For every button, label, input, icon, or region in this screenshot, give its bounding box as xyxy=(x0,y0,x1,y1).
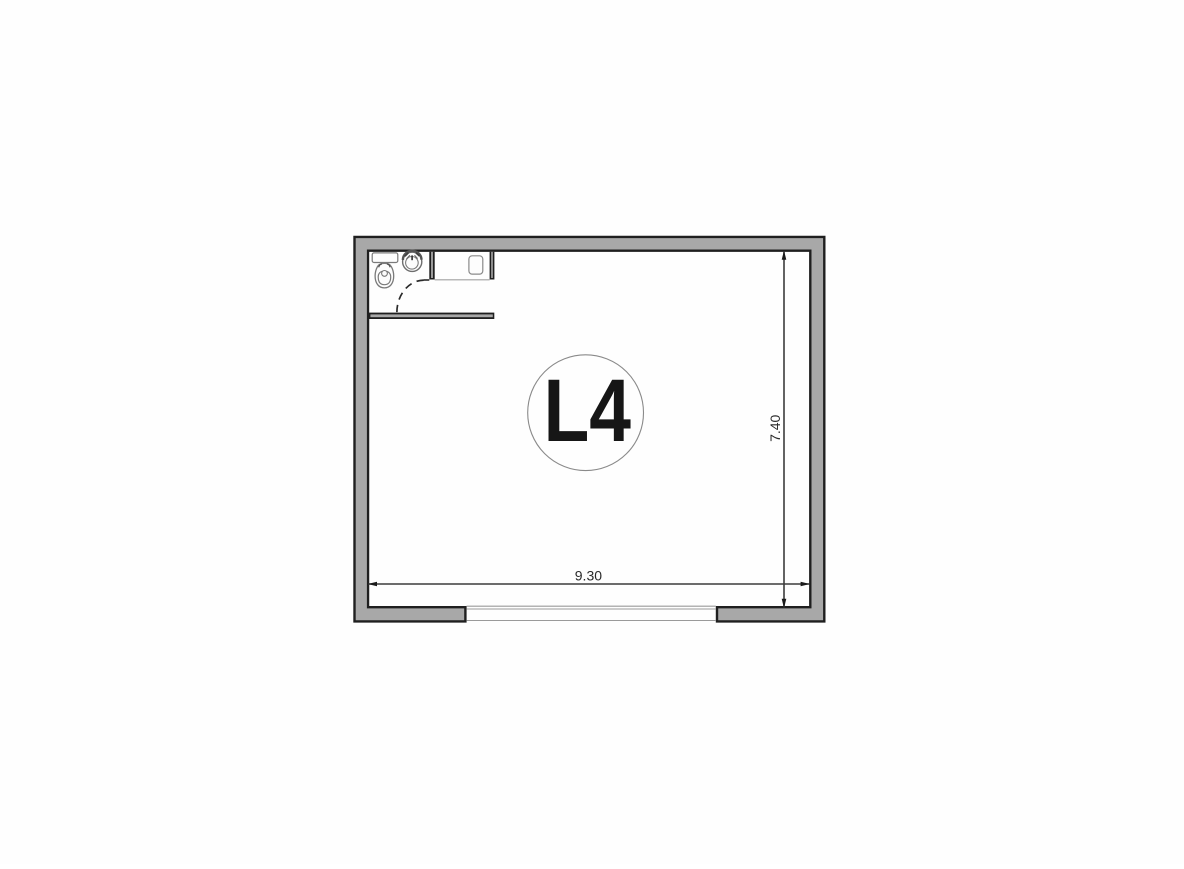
svg-text:L4: L4 xyxy=(543,360,631,460)
svg-text:7.40: 7.40 xyxy=(767,414,783,441)
svg-text:9.30: 9.30 xyxy=(575,568,602,584)
